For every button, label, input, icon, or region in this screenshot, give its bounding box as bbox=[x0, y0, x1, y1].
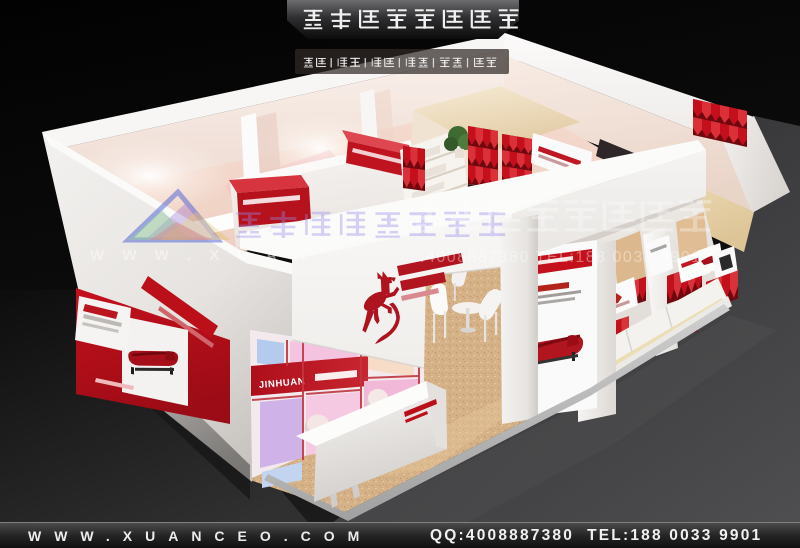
svg-text:W W W . X U A N: W W W . X U A N bbox=[90, 247, 312, 264]
svg-text::4008887380 TEL:188 0033 9901: :4008887380 TEL:188 0033 9901 bbox=[420, 249, 702, 266]
